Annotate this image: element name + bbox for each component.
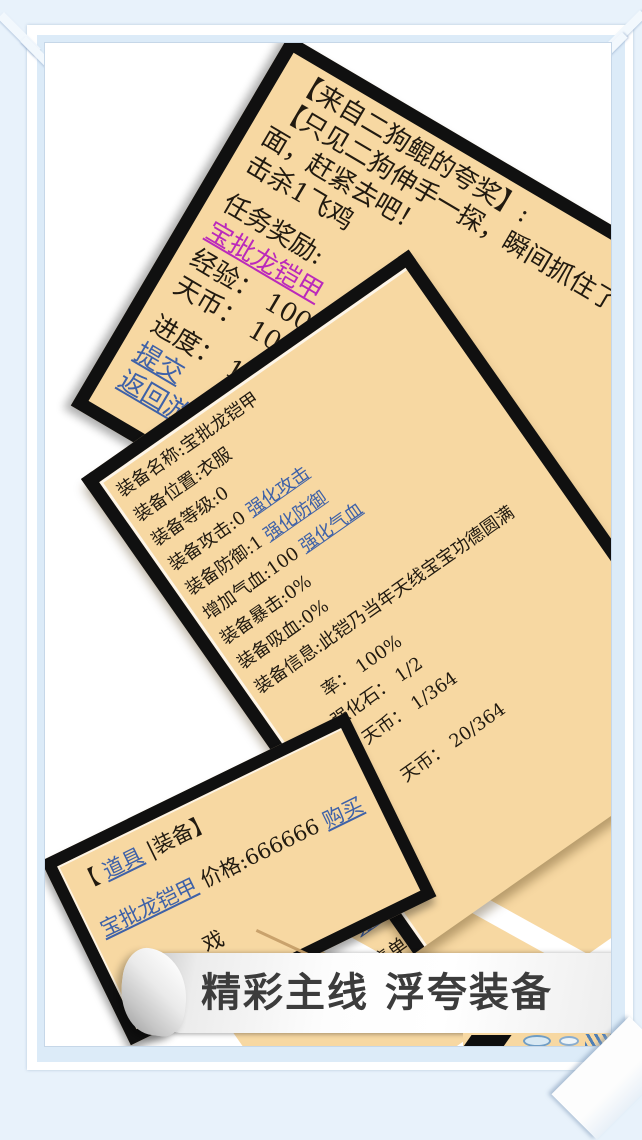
blue-ornament-icon: [523, 1035, 551, 1047]
blue-ornament-icon: [559, 1036, 579, 1046]
caption-bar: 精彩主线 浮夸装备: [149, 953, 612, 1033]
collage-canvas: 【来自二狗鲲的夸奖】: 【只见二狗伸手一探，瞬间抓住了 面，赶紧去吧！ 击杀1飞…: [44, 42, 612, 1047]
black-fragment: [463, 1035, 512, 1047]
promo-screenshot: { "caption": { "text": "精彩主线 浮夸装备" }, "q…: [0, 0, 642, 1080]
caption-text: 精彩主线 浮夸装备: [201, 953, 553, 1033]
fragment-strip: [463, 1033, 612, 1047]
